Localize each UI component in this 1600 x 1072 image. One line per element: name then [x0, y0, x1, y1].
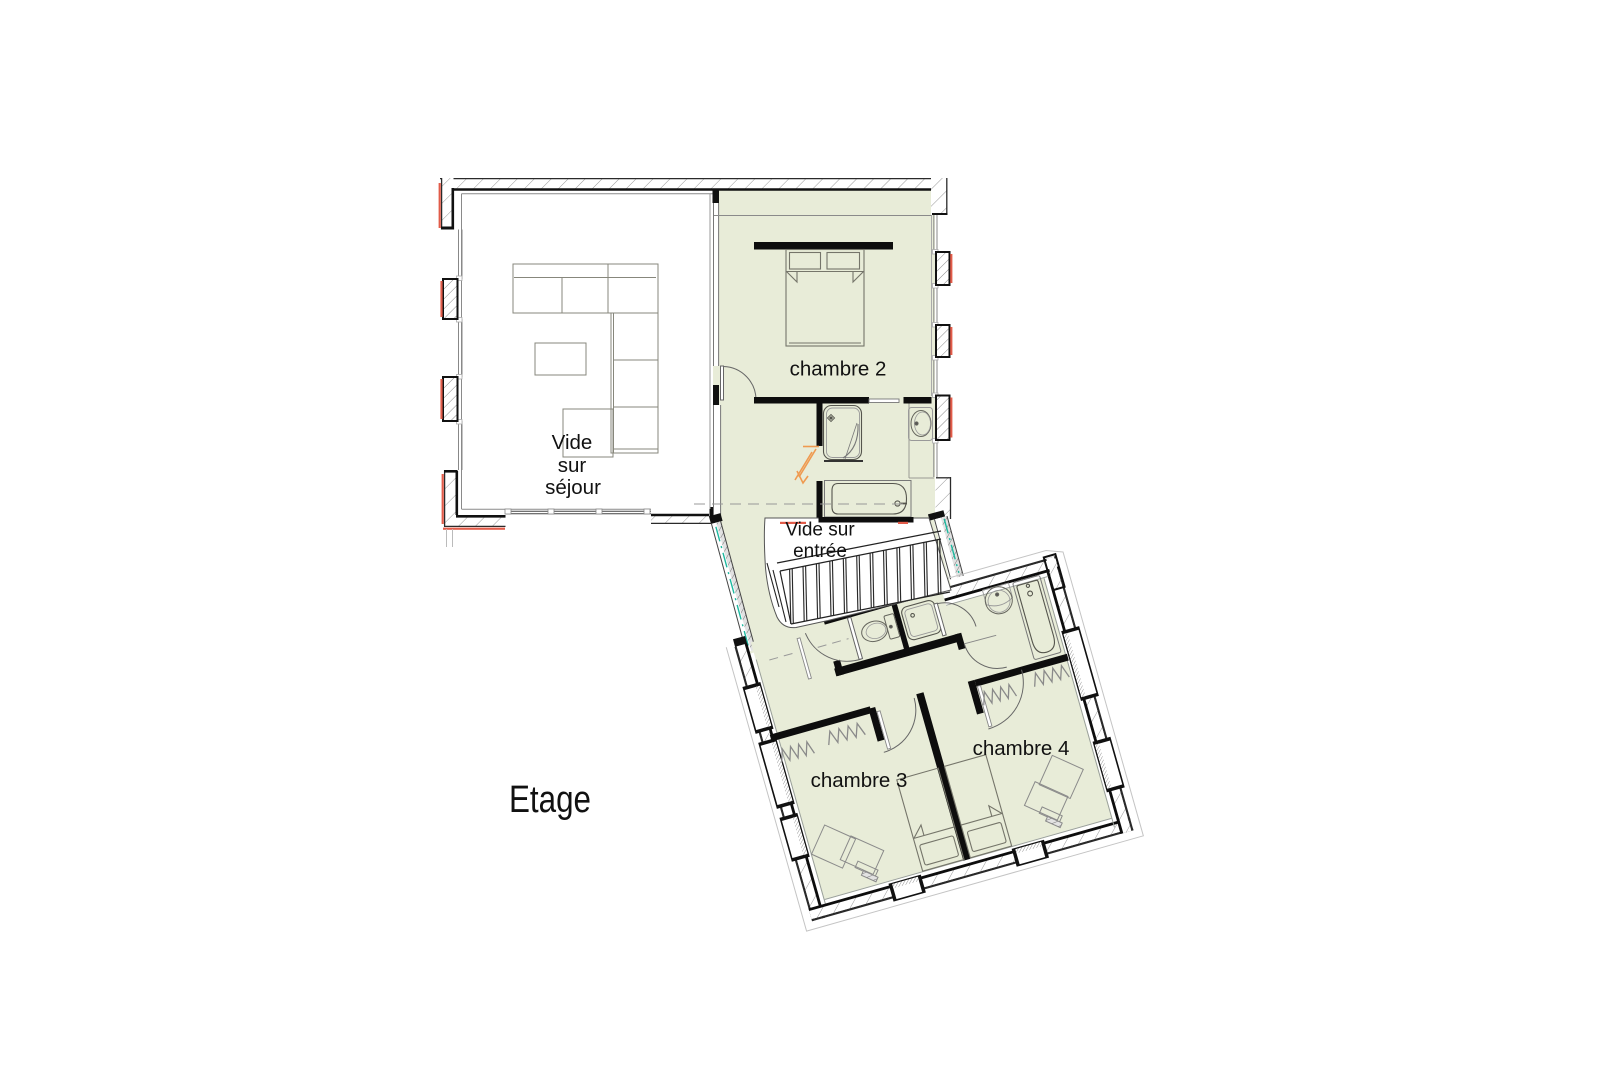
svg-text:chambre 4: chambre 4	[973, 737, 1070, 760]
svg-text:chambre 2: chambre 2	[790, 358, 887, 381]
svg-text:chambre 3: chambre 3	[811, 769, 908, 792]
svg-text:Vide sur: Vide sur	[785, 520, 855, 541]
svg-text:Vide: Vide	[552, 431, 593, 454]
svg-text:séjour: séjour	[545, 476, 601, 499]
svg-text:entrée: entrée	[793, 541, 847, 562]
svg-text:Etage: Etage	[509, 779, 591, 821]
svg-text:sur: sur	[558, 454, 587, 477]
